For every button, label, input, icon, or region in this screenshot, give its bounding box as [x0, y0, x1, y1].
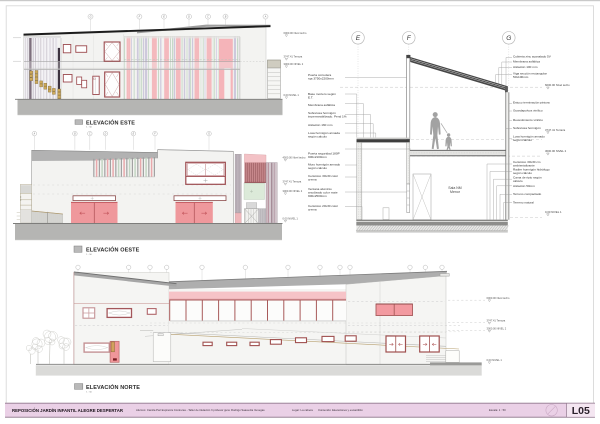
svg-text:A: A — [33, 133, 36, 136]
svg-text:rqa 3750x2200mm: rqa 3750x2200mm — [308, 77, 334, 81]
svg-text:Membrana asfáltica: Membrana asfáltica — [308, 103, 335, 107]
svg-text:Revestimiento vinílico: Revestimiento vinílico — [513, 118, 543, 122]
svg-text:3747.41 Terraza: 3747.41 Terraza — [283, 180, 302, 184]
svg-text:ELEVACIÓN OESTE: ELEVACIÓN OESTE — [86, 246, 140, 254]
svg-text:1 : 50: 1 : 50 — [86, 254, 92, 256]
svg-text:Aislación 160 mm: Aislación 160 mm — [308, 123, 333, 127]
svg-text:REPOSICIÓN JARDÍN INFANTIL AL: REPOSICIÓN JARDÍN INFANTIL ALEGRE DESPER… — [12, 408, 124, 413]
svg-text:ELEVACIÓN NORTE: ELEVACIÓN NORTE — [86, 383, 140, 391]
svg-text:según calculo: según calculo — [308, 135, 327, 139]
svg-text:3000.00 NIVEL 2: 3000.00 NIVEL 2 — [487, 327, 507, 331]
svg-text:6000.00 Nivel techo: 6000.00 Nivel techo — [284, 31, 307, 35]
svg-text:C: C — [207, 16, 209, 19]
svg-text:impermeabilizado. Pend 1%: impermeabilizado. Pend 1% — [308, 115, 347, 119]
svg-text:3000.00 NIVEL 2: 3000.00 NIVEL 2 — [545, 149, 567, 153]
svg-text:0.00 NIVEL 1: 0.00 NIVEL 1 — [284, 93, 300, 97]
svg-text:Aislación 100 mm: Aislación 100 mm — [513, 65, 538, 69]
svg-text:E: E — [356, 35, 361, 42]
svg-text:Menor: Menor — [450, 190, 461, 194]
svg-text:según cálculo: según cálculo — [513, 171, 532, 175]
svg-text:0.00 NIVEL 1: 0.00 NIVEL 1 — [283, 217, 299, 221]
svg-text:1 : 50: 1 : 50 — [86, 126, 92, 128]
svg-text:Alumno: Camila Paz Espinoza Co: Alumno: Camila Paz Espinoza Contreras - … — [136, 408, 265, 412]
svg-text:ELEVACIÓN ESTE: ELEVACIÓN ESTE — [86, 118, 135, 126]
svg-text:Terreno natural: Terreno natural — [513, 200, 534, 204]
svg-text:3747.41 Terraza: 3747.41 Terraza — [545, 128, 566, 132]
svg-text:Sala NM: Sala NM — [448, 186, 462, 190]
svg-text:1 : 50: 1 : 50 — [86, 391, 92, 393]
svg-text:D: D — [188, 16, 190, 19]
svg-text:Lugar: La cabera: Lugar: La cabera — [292, 408, 313, 412]
svg-text:Aislación 50mm: Aislación 50mm — [513, 184, 535, 188]
svg-text:crema: crema — [308, 178, 317, 182]
svg-text:Terreno compactado: Terreno compactado — [513, 192, 541, 196]
svg-text:900x2500mm: 900x2500mm — [308, 194, 327, 198]
svg-text:A: A — [264, 16, 267, 19]
svg-text:3747.41 Terraza: 3747.41 Terraza — [487, 319, 506, 323]
svg-text:50x100mm: 50x100mm — [513, 75, 529, 79]
svg-text:L05: L05 — [572, 405, 590, 417]
svg-text:4500.00 Nivel techo: 4500.00 Nivel techo — [283, 156, 306, 160]
svg-text:E.T.: E.T. — [308, 96, 313, 100]
svg-text:Sobrelosa hormigón: Sobrelosa hormigón — [513, 126, 541, 130]
svg-text:3747.41 Terraza: 3747.41 Terraza — [284, 55, 303, 59]
svg-text:cálculo: cálculo — [513, 179, 523, 183]
svg-text:0.00 NIVEL 1: 0.00 NIVEL 1 — [545, 210, 562, 214]
svg-text:G: G — [208, 134, 210, 136]
svg-text:Contenido: Elevaciones y esc: Contenido: Elevaciones y escantillón — [318, 408, 363, 412]
svg-text:6000.00 Nivel techo: 6000.00 Nivel techo — [545, 83, 570, 87]
svg-text:6000.00 Nivel techo: 6000.00 Nivel techo — [487, 296, 510, 300]
svg-text:según calculo: según calculo — [308, 166, 327, 170]
svg-text:3000.00 NIVEL 2: 3000.00 NIVEL 2 — [283, 189, 303, 193]
svg-text:Membrana asfáltica: Membrana asfáltica — [513, 60, 540, 64]
svg-text:Escala: 1 : 50: Escala: 1 : 50 — [489, 408, 506, 412]
svg-text:crema: crema — [308, 208, 317, 212]
svg-text:3000.00 NIVEL 2: 3000.00 NIVEL 2 — [284, 62, 304, 66]
svg-text:Estuco terminación pintura: Estuco terminación pintura — [513, 101, 550, 105]
svg-text:G: G — [506, 35, 511, 42]
svg-text:Guardapolvos vinílico: Guardapolvos vinílico — [513, 108, 543, 112]
svg-text:900x2100mm: 900x2100mm — [308, 155, 327, 159]
svg-text:0.00 NIVEL 1: 0.00 NIVEL 1 — [487, 358, 503, 362]
svg-text:según cálculo: según cálculo — [513, 138, 532, 142]
svg-text:G: G — [90, 16, 92, 19]
svg-text:Cubierta zinc acanalado 5V: Cubierta zinc acanalado 5V — [513, 54, 552, 58]
